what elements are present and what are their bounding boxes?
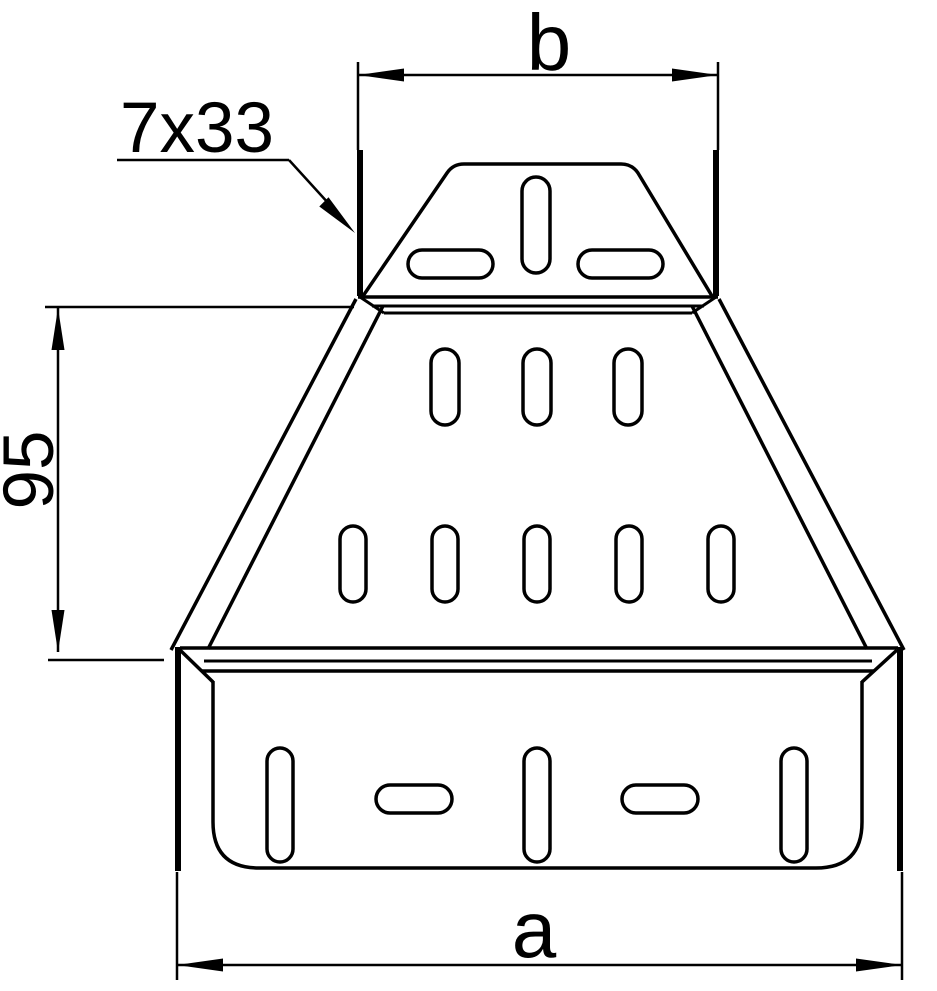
middle-section-upper-slot-1 [431,349,459,425]
technical-drawing-page: b 7x33 95 a [0,0,937,991]
middle-section-right-flange-inner [692,306,867,649]
dimension-95-label: 95 [0,431,69,510]
dimension-b-label: b [527,0,572,87]
middle-section-lower-slot-5 [708,526,734,602]
middle-section-right-flange-outer [719,299,904,650]
bottom-section-corner-bend-left [180,650,213,682]
bottom-section-corner-bend-right [862,650,897,682]
bottom-section [178,647,900,871]
top-section [358,150,718,313]
bottom-section-horizontal-slot-left [376,785,452,813]
dimension-b-arrow-left [358,69,404,82]
dimension-b-arrow-right [672,69,718,82]
dimension-a-label: a [512,885,557,974]
middle-section-upper-slot-2 [523,349,551,425]
dimension-95: 95 [0,307,354,660]
middle-section-lower-slot-3 [524,526,550,602]
slot-callout-arrowhead [319,197,355,233]
bottom-section-vertical-slot-center [524,748,550,862]
slot-callout: 7x33 [117,89,355,233]
middle-section-lower-slot-1 [340,526,366,602]
bottom-section-horizontal-slot-right [622,785,698,813]
middle-section-left-flange-outer [171,299,356,650]
middle-section-lower-slot-2 [432,526,458,602]
dimension-a: a [177,872,902,980]
middle-section-upper-slot-3 [614,349,642,425]
middle-section [171,299,904,650]
reducer-technical-drawing: b 7x33 95 a [0,0,937,991]
slot-callout-label: 7x33 [120,89,274,168]
dimension-95-arrow-top [52,308,65,350]
dimension-a-arrow-right [856,959,902,972]
dimension-b: b [358,0,718,150]
middle-section-lower-slot-4 [616,526,642,602]
dimension-95-arrow-bottom [52,610,65,652]
top-section-horizontal-slot-left [408,250,493,278]
top-section-center-slot [522,177,550,273]
dimension-a-arrow-left [177,959,223,972]
bottom-section-face-plate [213,681,862,868]
middle-section-left-flange-inner [208,306,383,649]
bottom-section-vertical-slot-right [781,748,807,862]
top-section-horizontal-slot-right [578,250,663,278]
bottom-section-vertical-slot-left [267,748,293,862]
